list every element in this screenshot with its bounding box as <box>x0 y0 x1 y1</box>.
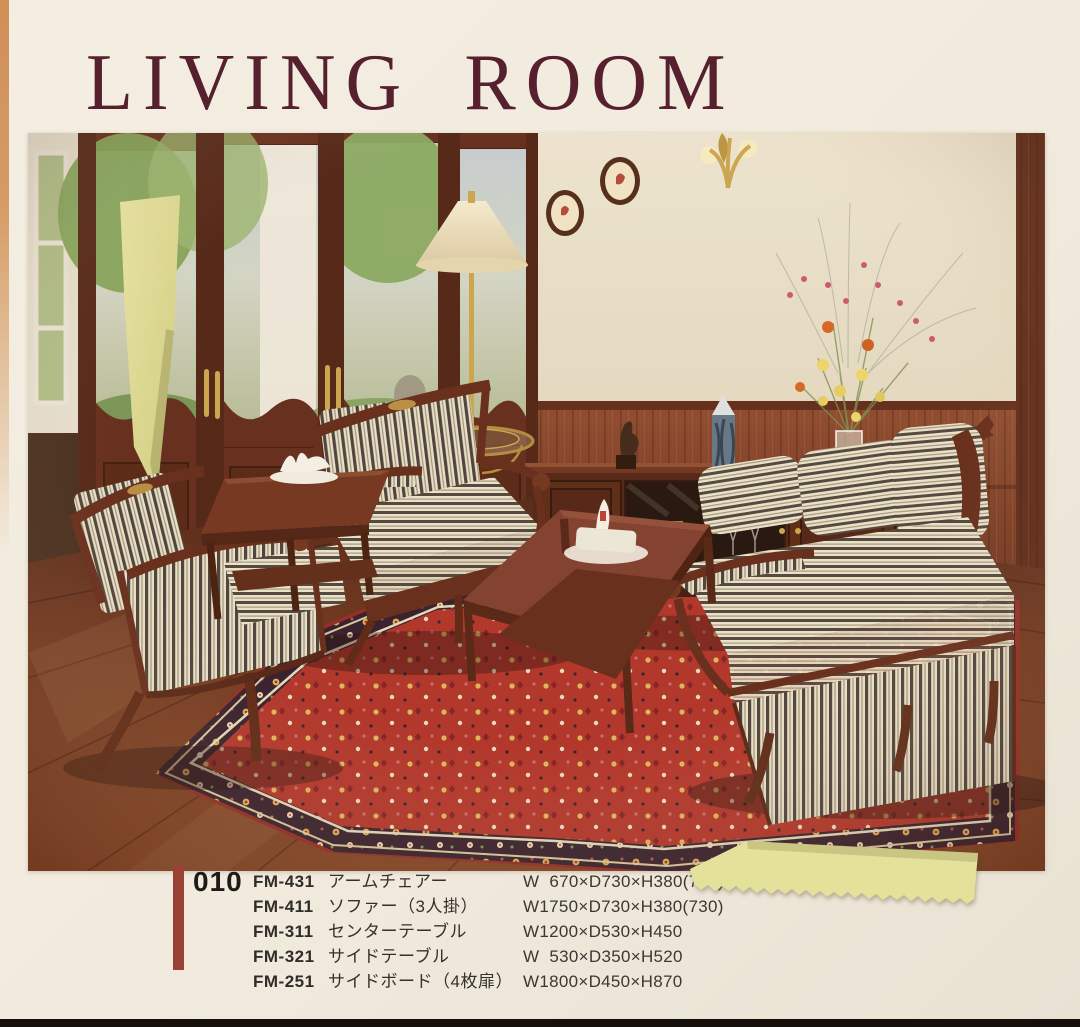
living-room-photo <box>28 133 1045 871</box>
product-name: サイドテーブル <box>323 944 458 969</box>
product-code: FM-431 <box>253 869 323 894</box>
product-row: FM-321 サイドテーブル W 530×D350×H520 <box>253 944 724 969</box>
product-list: FM-431 アームチェアー W 670×D730×H380(730) FM-4… <box>253 869 724 994</box>
product-code: FM-311 <box>253 919 323 944</box>
product-code: FM-251 <box>253 969 323 994</box>
catalog-page: LIVING ROOM <box>0 0 1080 1027</box>
product-dimensions: W 530×D350×H520 <box>458 944 683 969</box>
page-number: 010 <box>193 866 243 898</box>
product-row: FM-251 サイドボード（4枚扉） W1800×D450×H870 <box>253 969 724 994</box>
product-code: FM-411 <box>253 894 323 919</box>
product-name: ソファー（3人掛） <box>323 894 458 919</box>
product-row: FM-411 ソファー（3人掛） W1750×D730×H380(730) <box>253 894 724 919</box>
product-dimensions: W1200×D530×H450 <box>458 919 683 944</box>
page-title: LIVING ROOM <box>86 36 986 129</box>
table-surface-edge <box>0 0 9 560</box>
product-row: FM-311 センターテーブル W1200×D530×H450 <box>253 919 724 944</box>
product-name: センターテーブル <box>323 919 458 944</box>
product-name: アームチェアー <box>323 869 458 894</box>
product-dimensions: W1800×D450×H870 <box>458 969 683 994</box>
page-bottom-shadow <box>0 1019 1080 1027</box>
accent-bar <box>173 866 184 970</box>
product-code: FM-321 <box>253 944 323 969</box>
photo-scene <box>28 133 1045 871</box>
sticky-note-bottom-right <box>680 830 990 920</box>
product-row: FM-431 アームチェアー W 670×D730×H380(730) <box>253 869 724 894</box>
product-name: サイドボード（4枚扉） <box>323 969 458 994</box>
